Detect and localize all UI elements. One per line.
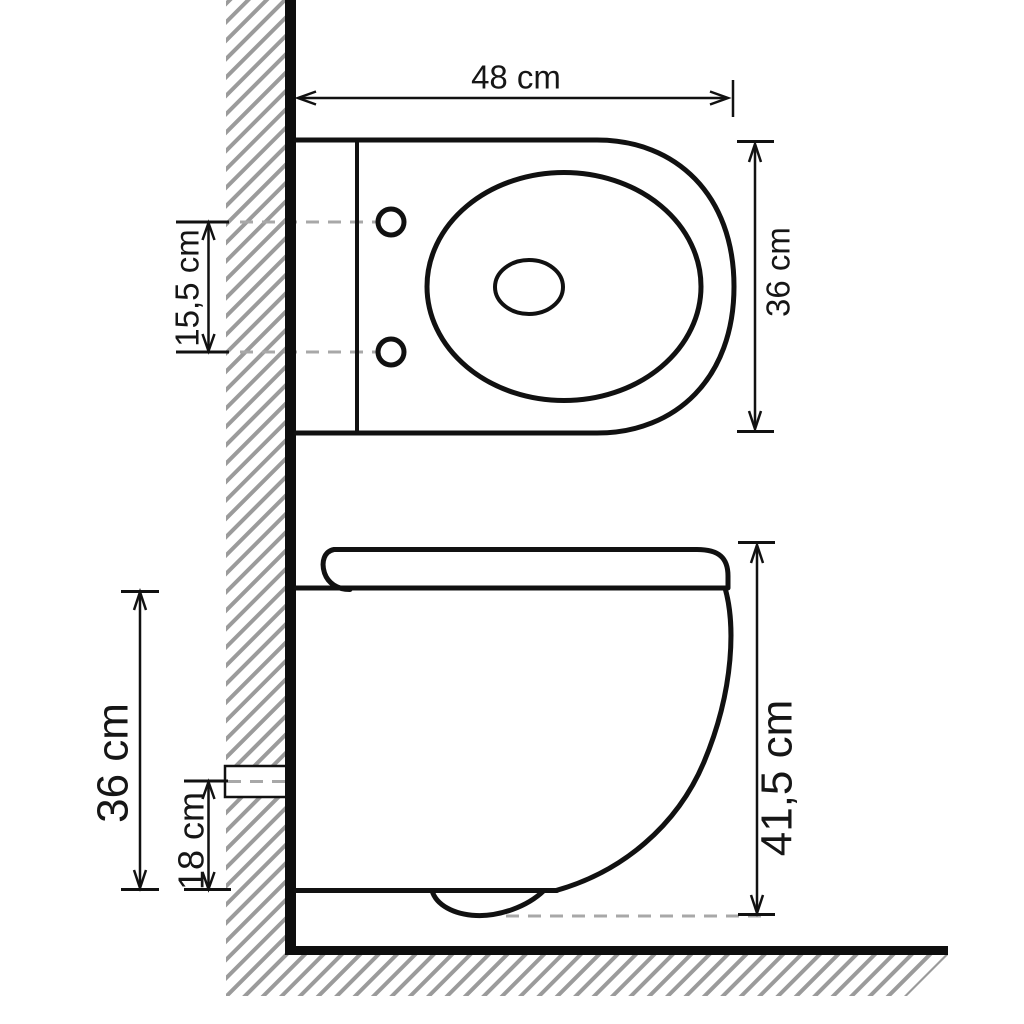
toilet-top-outline	[296, 140, 734, 433]
body-height-dimension-label: 36 cm	[89, 703, 138, 823]
mounting-hole-upper	[378, 209, 404, 235]
floor-line	[285, 946, 948, 955]
dimension-hole-spacing: 15,5 cm	[169, 222, 230, 352]
dimension-top-depth: 36 cm	[737, 142, 797, 432]
dimension-diagram: 48 cm 36 cm 15,5 cm 36 cm 18 cm	[0, 0, 1024, 1024]
top-width-dimension-label: 48 cm	[471, 59, 561, 96]
drain-pipe	[225, 766, 290, 797]
side-view-drawing	[296, 550, 731, 916]
toilet-dimension-drawing: 48 cm 36 cm 15,5 cm 36 cm 18 cm	[0, 0, 1024, 1024]
dimension-top-width: 48 cm	[298, 59, 733, 118]
wall-line	[285, 0, 296, 955]
body-front-profile	[556, 588, 731, 891]
dimension-overall-height: 41,5 cm	[738, 543, 802, 915]
dimension-body-height: 36 cm	[89, 592, 160, 890]
mounting-hole-lower	[378, 339, 404, 365]
dimension-drain-height: 18 cm	[171, 781, 232, 890]
overall-height-dimension-label: 41,5 cm	[753, 700, 802, 857]
outlet-curve	[432, 891, 544, 916]
hole-spacing-dimension-label: 15,5 cm	[169, 229, 206, 346]
drain-height-dimension-label: 18 cm	[171, 792, 212, 890]
top-depth-dimension-label: 36 cm	[760, 227, 797, 317]
toilet-seat-profile	[323, 550, 728, 590]
flush-drain-hole	[495, 260, 563, 314]
top-view-drawing	[296, 140, 734, 433]
wall-hatch	[226, 0, 285, 996]
floor-hatch	[285, 955, 948, 996]
